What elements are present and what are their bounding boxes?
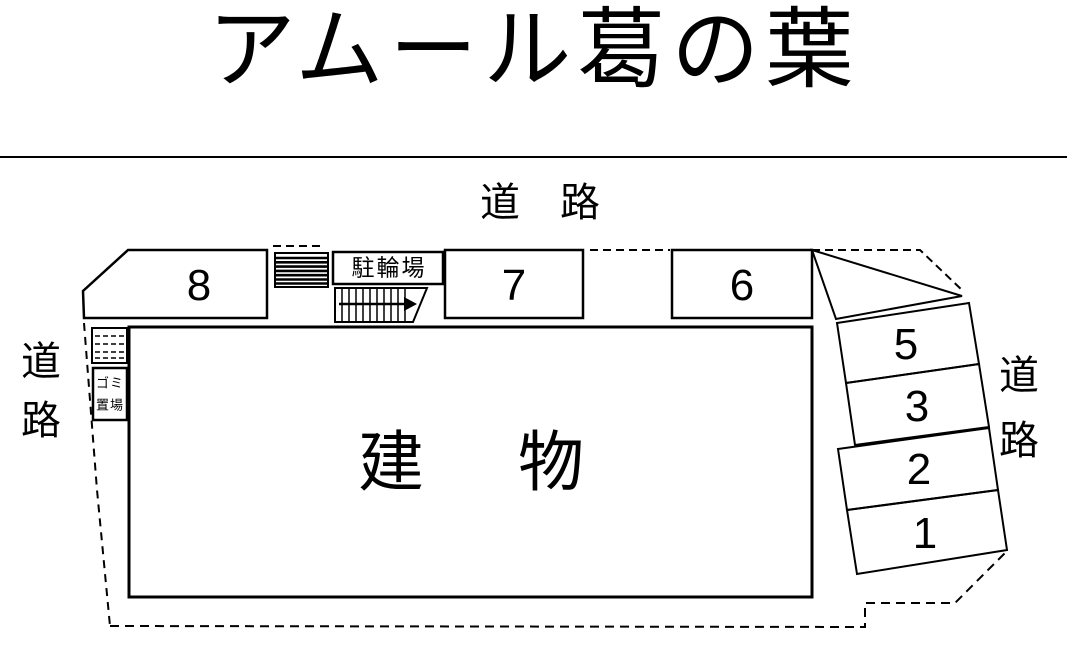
- road-label-right-char1: 道: [999, 356, 1039, 396]
- road-label-left-char2: 路: [21, 401, 61, 441]
- parking-space-2-number: 2: [907, 448, 931, 492]
- parking-space-5-number: 5: [894, 323, 918, 367]
- road-label-top: 道 路: [480, 183, 600, 223]
- parking-space-8-outline: [83, 250, 267, 318]
- arrow-head-icon: [404, 297, 417, 311]
- garbage-storage-label-line2: 置場: [96, 399, 124, 412]
- road-label-right-char2: 路: [999, 421, 1039, 461]
- parking-space-3-number: 3: [905, 385, 929, 429]
- parking-space-8-number: 8: [187, 264, 211, 308]
- page-title: アムール葛の葉: [0, 6, 1067, 94]
- hatched-utility-box: [92, 328, 127, 363]
- parking-space-6-number: 6: [730, 264, 754, 308]
- bicycle-parking-label: 駐輪場: [352, 257, 427, 280]
- building-label: 建 物: [358, 429, 598, 495]
- boundary-dash-bottom: [110, 551, 1007, 627]
- corner-wedge-outline: [812, 250, 962, 319]
- road-label-left-char1: 道: [21, 342, 61, 382]
- garbage-storage-label-line1: ゴミ: [96, 377, 124, 390]
- striped-stairs-block: [275, 253, 328, 287]
- site-plan: アムール葛の葉 道 路 道 路 道 路 建 物 駐輪場 ゴミ 置場 8 7 6 …: [0, 0, 1067, 647]
- staircase: [335, 288, 427, 322]
- parking-space-1-number: 1: [913, 512, 937, 556]
- parking-space-7-number: 7: [502, 264, 526, 308]
